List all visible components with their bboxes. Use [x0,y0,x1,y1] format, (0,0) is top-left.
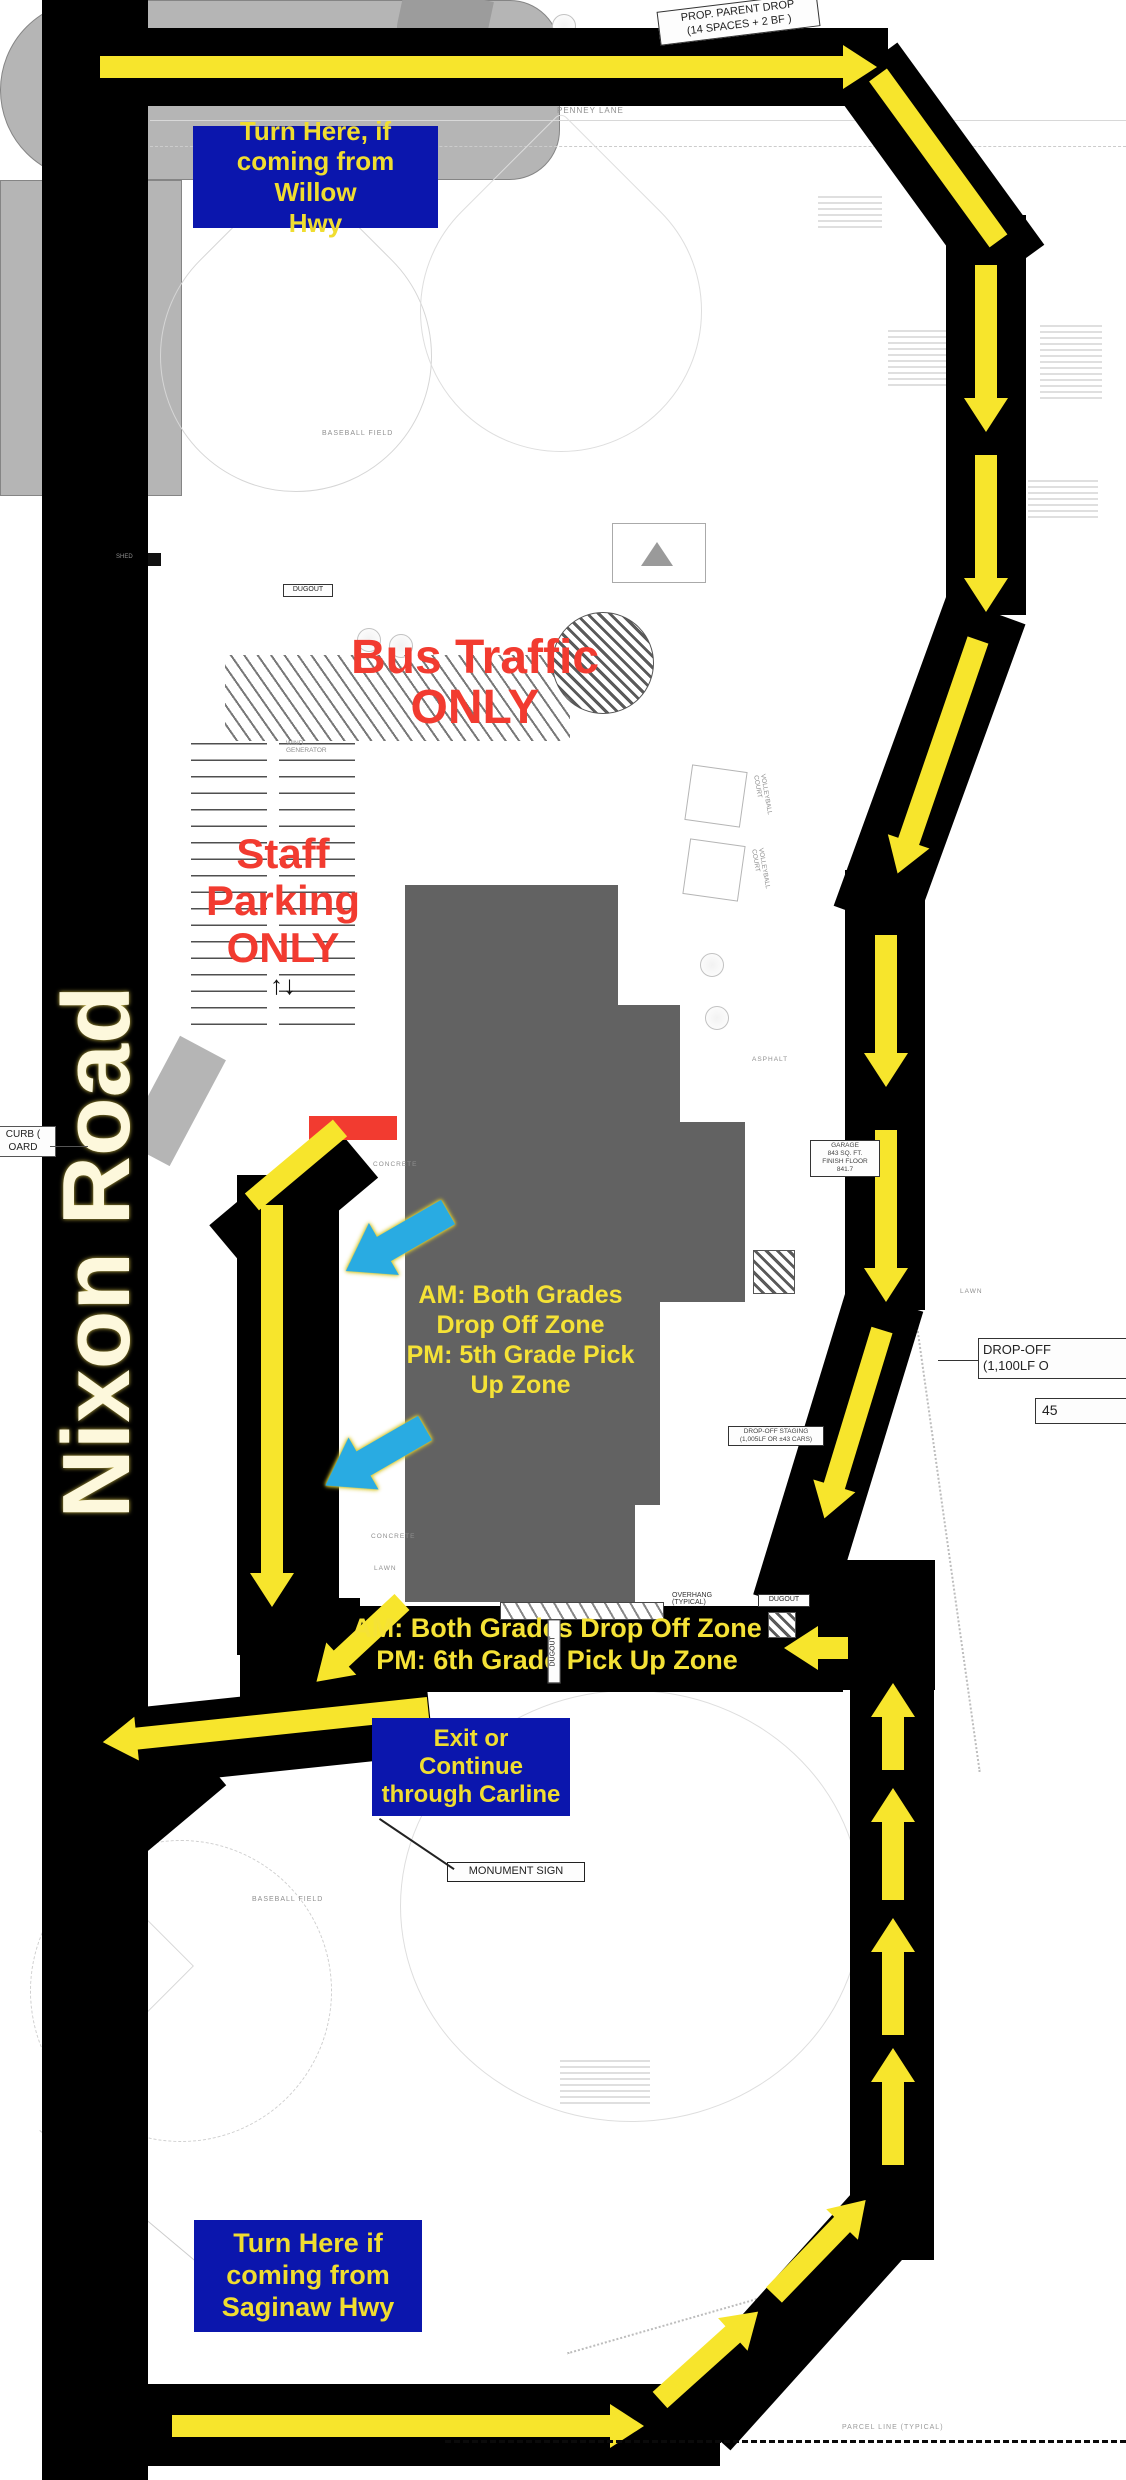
label-garage: GARAGE 843 SQ. FT. FINISH FLOOR 841.7 [810,1140,880,1177]
volleyball-court [684,764,747,827]
site-plan: ↑↓ Nixon Road Turn Here, if coming from [0,0,1126,2480]
sign-exit-carline: Exit or Continue through Carline [372,1718,570,1816]
school-building [405,885,745,1602]
label-asphalt: ASPHALT [752,1056,788,1063]
label-curb: CURB ( OARD [0,1126,56,1157]
plan-note-block [1040,325,1102,403]
label-concrete: CONCRETE [373,1161,417,1168]
route-arrow [871,1920,915,2035]
label-baseball-field: BASEBALL FIELD [252,1896,323,1903]
label-volleyball: VOLLEYBALL COURT [752,773,773,816]
label-dropoff-length: DROP-OFF (1,100LF O [978,1338,1126,1379]
label-dugout: DUGOUT [758,1594,810,1607]
label-lawn: LAWN [960,1288,983,1295]
tree-marker [700,953,724,977]
label-penney-lane: PENNEY LANE [557,106,624,115]
leader-line [938,1360,978,1361]
label-baseball-field: BASEBALL FIELD [322,430,393,437]
route-arrow [871,1685,915,1770]
volleyball-court [682,838,745,901]
dugout-structure [768,1612,796,1638]
sign-turn-willow: Turn Here, if coming from Willow Hwy [193,126,438,228]
route-arrow [864,935,908,1085]
label-dropoff-staging: DROP-OFF STAGING (1,005LF OR ±43 CARS) [728,1426,824,1446]
route-arrow [100,45,875,89]
plan-note-block [1028,480,1098,520]
tree-marker [705,1006,729,1030]
label-overhang: OVERHANG (TYPICAL) [672,1592,712,1606]
label-shed: SHED [116,554,133,560]
route-arrow [964,265,1008,430]
zone-5th-grade-label: AM: Both Grades Drop Off Zone PM: 5th Gr… [378,1280,663,1400]
carline-arrow [250,1205,294,1605]
label-concrete: CONCRETE [371,1533,415,1540]
label-dugout: DUGOUT [548,1619,561,1683]
label-dugout: DUGOUT [283,584,333,597]
staff-parking-label: Staff Parking ONLY [168,830,398,971]
garage-hatch-box [753,1250,795,1294]
road-name-nixon: Nixon Road [41,902,153,1602]
leader-line [50,1146,88,1147]
playground-icon [641,542,673,566]
route-arrow [871,1790,915,1900]
label-volleyball: VOLLEYBALL COURT [750,847,771,890]
shed-marker [148,553,161,566]
bus-traffic-label: Bus Traffic ONLY [295,633,655,734]
label-parcel-line: PARCEL LINE (TYPICAL) [842,2424,944,2431]
pedestrian-arrows: ↑↓ [270,970,296,1001]
route-arrow [871,2050,915,2165]
label-lawn: LAWN [374,1565,397,1572]
playground-structure [612,523,706,583]
label-wind-generator: WIND GENERATOR [286,740,327,754]
label-45: 45 [1035,1398,1126,1424]
route-arrow [964,455,1008,610]
parcel-line [445,2440,1126,2443]
sign-turn-saginaw: Turn Here if coming from Saginaw Hwy [194,2220,422,2332]
label-monument-sign: MONUMENT SIGN [447,1862,585,1882]
plan-note-block [818,196,882,232]
plan-note-block [560,2060,650,2106]
